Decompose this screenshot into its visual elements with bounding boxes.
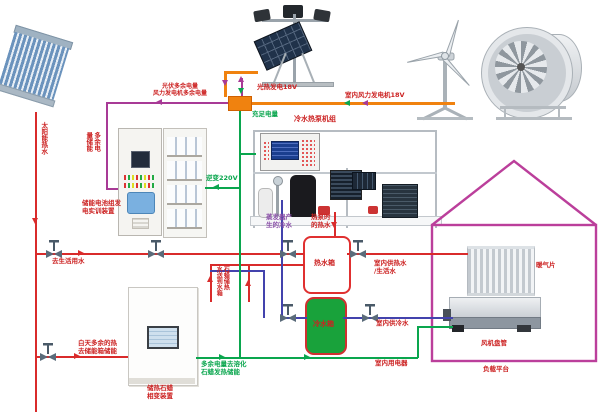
arrow-pv-orange-down (222, 80, 228, 86)
arrow-excess-left (156, 99, 162, 105)
battery-shelf-4 (167, 209, 202, 229)
label-supply-cold: 室内供冷水 (376, 320, 409, 328)
label-paraffin-device: 储热石蜡 相变装置 (147, 385, 173, 401)
hp-buttons-right (301, 139, 315, 167)
label-excess-line2: 风力发电机多余电量 (148, 90, 212, 97)
junction-box (228, 96, 252, 111)
label-inverter: 逆变220V (206, 175, 238, 183)
system-diagram: 热水箱 冷水箱 (0, 0, 600, 419)
cabinet-button-row1 (124, 175, 156, 180)
pv-tracker (250, 2, 345, 90)
label-evaporator-line2: 生的冷水 (266, 222, 292, 230)
label-evaporator: 蒸发器产 生的冷水 (266, 214, 292, 230)
label-excess: 光伏多余电量 风力发电机多余电量 (148, 83, 212, 97)
label-load-platform: 负载平台 (483, 366, 509, 374)
label-paraffin-to-tank: 石蜡储热 水送到水箱 (215, 266, 229, 302)
label-battery-device-line2: 电实训装置 (82, 208, 121, 216)
wire-power-main-vertical (239, 109, 241, 358)
cabinet-screen (131, 151, 150, 168)
fan-hub (517, 63, 525, 71)
pipe-hot-main-left (36, 253, 304, 255)
arrow-pv-excess-up (238, 76, 244, 82)
valve-daytime (40, 343, 56, 363)
wire-pv-18v-h (224, 71, 258, 74)
wind-turbine (393, 12, 488, 122)
fan-stand-bottom (496, 117, 572, 120)
arrow-pv-green-down (238, 88, 244, 94)
label-solar-pipe: 太阳能热水 (39, 122, 47, 174)
battery-shelf-3 (167, 185, 202, 205)
valve-cold-tank-in (280, 304, 296, 324)
fan-coil-mount-left (452, 325, 464, 332)
fan-coil-top (449, 297, 541, 319)
arrow-wind-green-left (344, 100, 350, 106)
label-domestic-water: 去生活用水 (52, 258, 85, 266)
hp-control-panel (260, 133, 320, 171)
label-supply-hot-line2: /生活水 (374, 268, 407, 276)
label-pv-gen: 光热发电18V (257, 84, 297, 92)
wire-inverter (205, 187, 240, 189)
valve-hot-tank-out (350, 240, 366, 260)
wire-fancoil-feed (417, 326, 453, 328)
label-sufficient: 充足电量 (252, 111, 278, 119)
cabinet-blue-panel (127, 192, 155, 214)
hp-display-box (352, 172, 376, 190)
pipe-solar-vertical (35, 112, 37, 412)
label-battery-store-col2: 量储能 (84, 132, 92, 156)
label-radiator: 暖气片 (536, 262, 556, 270)
paraffin-screen (147, 326, 179, 349)
hp-compressor (290, 175, 316, 217)
valve-main-2 (148, 240, 164, 260)
label-melt-line2: 石蜡发热储能 (201, 369, 247, 377)
wire-to-heatpump (239, 153, 256, 155)
label-wind-gen: 室内风力发电机18V (345, 92, 405, 100)
label-paraffin-to-tank-col2: 水送到水箱 (215, 266, 222, 302)
fan-coil-pipes (443, 309, 451, 321)
label-battery-device: 储能电池组发 电实训装置 (82, 200, 121, 216)
radiator (467, 246, 535, 296)
wire-wind-18v (249, 102, 455, 105)
wire-excess-horizontal (106, 102, 228, 104)
cabinet-button-row2 (124, 183, 156, 188)
hp-blue-unit (382, 184, 418, 218)
arrow-paraffin-up1 (207, 276, 213, 282)
cold-tank-label: 冷水箱 (313, 320, 334, 328)
label-hp-hot-line2: 的热水 (311, 222, 331, 230)
hp-red-pump2 (368, 206, 378, 214)
wire-excess-to-cabinet (106, 188, 118, 190)
battery-shelf-1 (167, 137, 202, 157)
label-appliances: 室内用电器 (375, 360, 408, 368)
arrow-hp-hot-down (331, 222, 337, 228)
pv-panel (254, 21, 313, 71)
hot-tank-label: 热水箱 (314, 259, 335, 267)
label-melt-paraffin: 多余电量去溶化 石蜡发热储能 (201, 361, 247, 377)
label-supply-hot: 室内供热水 /生活水 (374, 260, 407, 276)
fan-stand-top (500, 106, 566, 109)
control-cabinet (118, 128, 162, 236)
hp-screen (271, 141, 299, 160)
arrow-inverter-left (213, 184, 219, 190)
arrow-wind-excess-left (362, 100, 368, 106)
label-heat-pump-title: 冷水热泵机组 (294, 115, 336, 123)
hp-gauge-dial (273, 176, 283, 186)
label-battery-store: 多余电 量储能 (84, 132, 100, 156)
label-paraffin-to-tank-col1: 石蜡储热 (222, 266, 229, 302)
battery-shelf-2 (167, 161, 202, 181)
bench-top-rail (253, 130, 437, 132)
solar-collector (0, 25, 73, 111)
arrow-bus-right2 (304, 354, 310, 360)
arrow-solar-down (32, 218, 38, 224)
label-hp-hot: 热泵时 的热水 (311, 214, 331, 230)
valve-hot-tank-in (280, 240, 296, 260)
pipe-cold-paraffin-v (263, 270, 265, 318)
battery-cabinet (163, 128, 207, 238)
bench-post-left (253, 130, 255, 228)
label-daytime-line2: 去储能箱储能 (78, 348, 117, 356)
axial-fan (478, 24, 588, 120)
wire-fancoil-riser (417, 326, 419, 358)
paraffin-box (128, 287, 198, 386)
cabinet-vent (132, 218, 149, 229)
wire-excess-vertical (106, 102, 108, 189)
arrow-paraffin-up2 (245, 280, 251, 286)
label-daytime-heat: 白天多余的热 去储能箱储能 (78, 340, 117, 356)
label-paraffin-device-line2: 相变装置 (147, 393, 173, 401)
label-fan-coil: 风机盘管 (481, 340, 507, 348)
fan-coil-unit (449, 297, 539, 329)
fan-coil-mount-right (517, 325, 531, 332)
hp-buttons-left (263, 141, 269, 161)
arrow-hot-right (78, 250, 84, 256)
